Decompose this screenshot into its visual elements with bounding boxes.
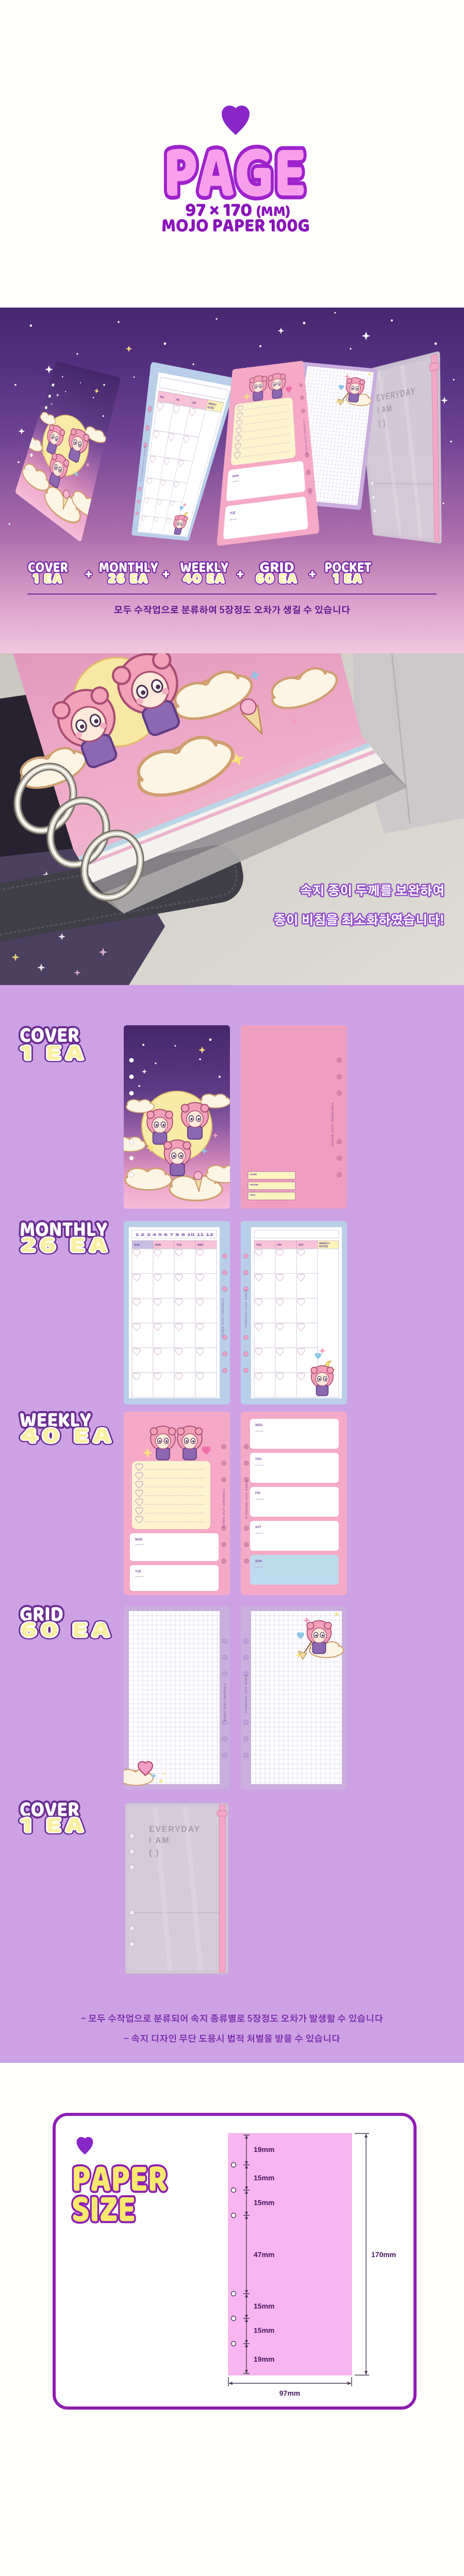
svg-text:15mm: 15mm <box>254 2302 274 2310</box>
svg-text:170mm: 170mm <box>371 2250 396 2259</box>
svg-text:19mm: 19mm <box>254 2145 274 2154</box>
svg-text:97mm: 97mm <box>279 2389 300 2397</box>
svg-text:15mm: 15mm <box>254 2174 274 2182</box>
svg-text:15mm: 15mm <box>254 2326 274 2334</box>
svg-text:47mm: 47mm <box>254 2250 274 2259</box>
svg-text:19mm: 19mm <box>254 2355 274 2363</box>
svg-text:15mm: 15mm <box>254 2198 274 2207</box>
